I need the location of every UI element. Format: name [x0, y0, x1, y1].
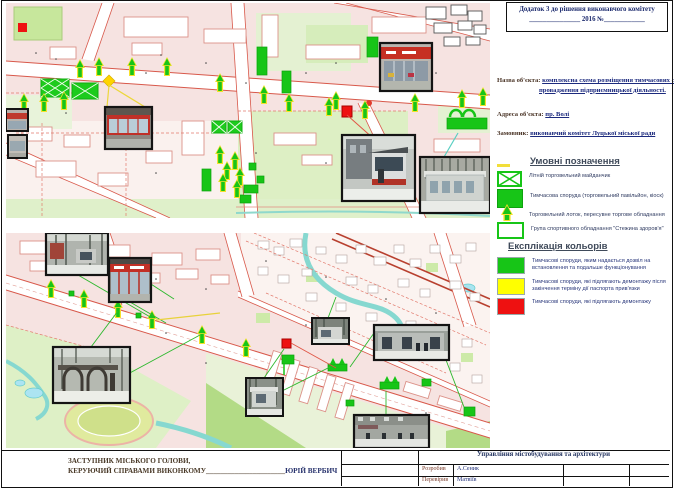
colorkey-item-red: Тимчасові споруди, які підлягають демонт… — [497, 298, 669, 315]
colorkey-item-label: Тимчасові споруди, які підлягають демонт… — [532, 298, 651, 306]
annex-note-line1: Додаток 3 до рішення виконавчого комітет… — [507, 5, 667, 15]
annex-note-line2: _______________ 2016 №____________ — [507, 15, 667, 25]
colorkey-item-green: Тимчасові споруди, яким надається дозвіл… — [497, 257, 669, 274]
legend-item-label: Група спортивного обладнання "Стежина зд… — [531, 222, 664, 233]
object-name-label: Назва об'єкта: — [497, 77, 540, 84]
signature-line2: КЕРУЮЧИЙ СПРАВАМИ ВИКОНКОМУ_____________… — [68, 466, 337, 476]
photo-inset-storefront-sign — [380, 43, 432, 91]
demolition-marker — [282, 339, 291, 348]
legend-item-label: Торговельний лоток, пересувне торгове об… — [529, 203, 665, 219]
colorkey-item-label: Тимчасові споруди, яким надається дозвіл… — [532, 257, 669, 273]
photo-inset-small-shop-a — [6, 109, 28, 131]
legend-item-label: Тимчасова споруда (торговельний павільйо… — [530, 189, 664, 200]
photo-inset-arch-pavilion — [53, 347, 130, 403]
summer-trade-ground-icon — [497, 171, 522, 187]
photo-inset-small-shop-b — [8, 135, 27, 158]
object-name-row: Назва об'єкта: комплексна схема розміщен… — [497, 76, 674, 95]
signature-role: КЕРУЮЧИЙ СПРАВАМИ ВИКОНКОМУ — [68, 467, 206, 475]
yellow-dash-icon — [497, 164, 510, 167]
red-swatch — [497, 298, 525, 315]
document-page: Додаток 3 до рішення виконавчого комітет… — [0, 0, 674, 488]
client-value: виконавчий комітет Луцької міської ради — [530, 130, 655, 137]
object-name-value: комплексна схема розміщення тимчасових с… — [539, 77, 674, 94]
sport-equipment-icon — [497, 222, 524, 239]
photo-inset-street-trees — [46, 233, 108, 275]
green-swatch — [497, 257, 525, 274]
table-divider — [629, 464, 630, 486]
object-address-row: Адреса об'єкта: пр. Волі — [497, 110, 674, 120]
table-divider — [342, 476, 669, 477]
photo-inset-kiosk-street — [342, 135, 415, 201]
client-label: Замовник: — [497, 130, 528, 137]
legend-item-sport-equipment: Група спортивного обладнання "Стежина зд… — [497, 222, 667, 239]
photo-inset-kiosk-row — [374, 325, 449, 360]
table-divider — [342, 464, 669, 465]
map-top — [6, 3, 490, 218]
role-cell: Перевірив — [422, 477, 448, 483]
colorkey-item-label: Тимчасові споруди, які підлягають демонт… — [532, 278, 669, 294]
signature-name: ЮРІЙ ВЕРБИЧ — [285, 467, 337, 475]
object-address-label: Адреса об'єкта: — [497, 111, 544, 118]
photo-inset-red-storefront — [105, 107, 152, 149]
client-row: Замовник: виконавчий комітет Луцької міс… — [497, 129, 674, 139]
table-divider — [453, 464, 454, 486]
name-cell: А.Сеник — [457, 466, 479, 472]
signature-block: ЗАСТУПНИК МІСЬКОГО ГОЛОВИ, КЕРУЮЧИЙ СПРА… — [68, 456, 337, 477]
photo-inset-kiosk-trees — [246, 378, 283, 416]
legend-item-summer-trade: Літній торговельний майданчик — [497, 171, 667, 187]
signature-blank: ______________________ — [206, 467, 285, 475]
colorkey-item-yellow: Тимчасові споруди, які підлягають демонт… — [497, 278, 669, 295]
photo-inset-kiosk-small — [312, 318, 349, 344]
name-cell: Матвіїв — [457, 477, 476, 483]
table-divider — [563, 464, 564, 486]
photo-inset-pavilion-trees — [420, 157, 490, 213]
colorkey-title: Експлікація кольорів — [508, 241, 608, 252]
legend-item-label: Літній торговельний майданчик — [529, 171, 610, 180]
photo-inset-red-store — [109, 258, 151, 302]
object-address-value: пр. Волі — [545, 111, 569, 118]
map-bottom — [6, 233, 490, 448]
role-cell: Розробив — [422, 466, 446, 472]
yellow-swatch — [497, 278, 525, 295]
legend-title: Умовні позначення — [530, 156, 620, 167]
titleblock-table: Управління містобудування та архітектури… — [341, 450, 669, 486]
photo-inset-street-people — [354, 415, 429, 448]
annex-note: Додаток 3 до рішення виконавчого комітет… — [506, 2, 668, 32]
department-cell: Управління містобудування та архітектури — [418, 451, 669, 458]
signature-line1: ЗАСТУПНИК МІСЬКОГО ГОЛОВИ, — [68, 456, 337, 466]
